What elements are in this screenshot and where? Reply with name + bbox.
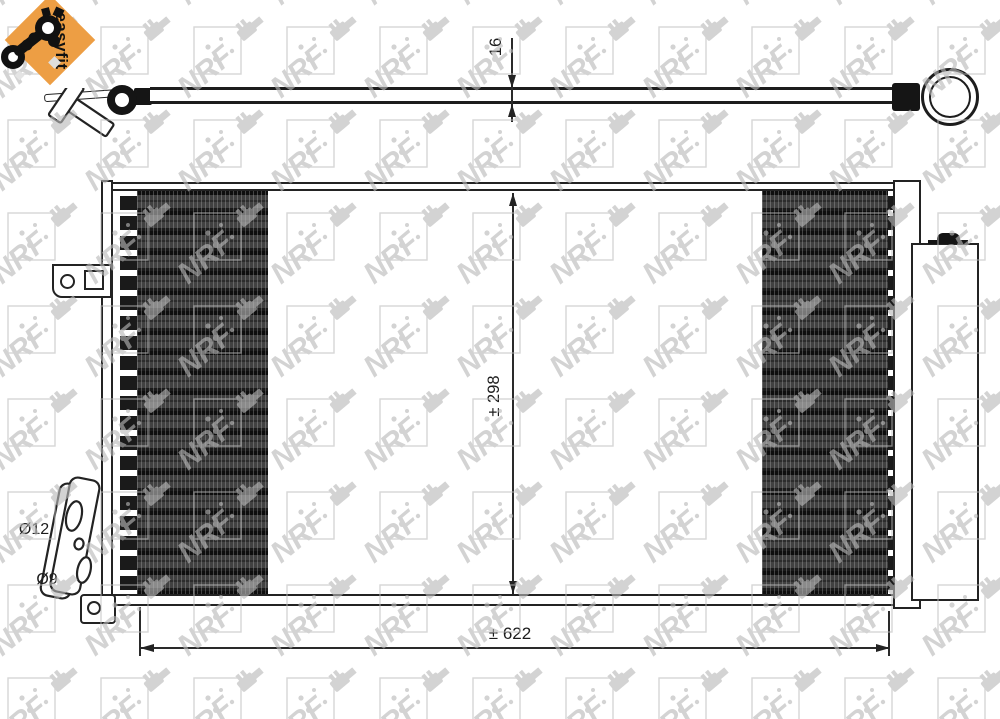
watermark-key-icon bbox=[790, 10, 823, 42]
watermark-text: NRF bbox=[264, 597, 333, 662]
watermark-text: NRF bbox=[729, 597, 798, 662]
watermark-key-icon bbox=[511, 103, 544, 135]
core-fins-left bbox=[137, 191, 268, 595]
watermark-key-icon bbox=[883, 10, 916, 42]
watermark-text: NRF bbox=[636, 0, 705, 11]
core-fins-right bbox=[762, 191, 888, 595]
dim-line-width bbox=[140, 647, 890, 649]
drier-cap bbox=[937, 233, 960, 242]
dim-line-height bbox=[512, 193, 514, 594]
watermark-key-icon bbox=[790, 661, 823, 693]
watermark-text: NRF bbox=[822, 597, 891, 662]
watermark-text: NRF bbox=[78, 690, 147, 719]
pipe-eyelet-left bbox=[107, 85, 137, 115]
watermark-key-icon bbox=[976, 568, 1000, 600]
bottom-header-plate bbox=[112, 594, 893, 606]
watermark-key-icon bbox=[604, 661, 637, 693]
watermark-text: NRF bbox=[822, 0, 891, 11]
dim-arrow-pipe-bottom bbox=[508, 104, 516, 117]
watermark-text: NRF bbox=[636, 690, 705, 719]
watermark-key-icon bbox=[418, 103, 451, 135]
watermark-text: NRF bbox=[543, 597, 612, 662]
watermark-text: NRF bbox=[357, 597, 426, 662]
watermark-key-icon bbox=[883, 661, 916, 693]
dim-arrow-height-bottom bbox=[509, 581, 517, 594]
watermark-key-icon bbox=[325, 10, 358, 42]
watermark-text: NRF bbox=[915, 597, 984, 662]
watermark-text: NRF bbox=[0, 225, 54, 290]
pipe-collar-right bbox=[892, 83, 920, 111]
foot-bracket-hole bbox=[87, 601, 101, 615]
pipe bbox=[150, 87, 895, 104]
watermark-key-icon bbox=[139, 10, 172, 42]
watermark-key-icon bbox=[46, 382, 79, 414]
watermark-text: NRF bbox=[543, 690, 612, 719]
watermark-text: NRF bbox=[171, 0, 240, 11]
watermark-text: NRF bbox=[0, 411, 54, 476]
watermark-key-icon bbox=[790, 103, 823, 135]
watermark-key-icon bbox=[232, 10, 265, 42]
dim-arrow-pipe-top bbox=[508, 75, 516, 88]
watermark-text: NRF bbox=[822, 690, 891, 719]
watermark-text: NRF bbox=[0, 690, 54, 719]
dim-arrow-width-right bbox=[876, 644, 890, 652]
bracket-square-hole bbox=[84, 270, 104, 290]
watermark-key-icon bbox=[697, 103, 730, 135]
watermark-key-icon bbox=[604, 103, 637, 135]
pipe-ring-right-inner bbox=[929, 76, 971, 118]
watermark-text: NRF bbox=[0, 318, 54, 383]
port-top-label: Ø12 bbox=[14, 520, 54, 540]
watermark-key-icon bbox=[418, 10, 451, 42]
watermark-text: NRF bbox=[0, 597, 54, 662]
watermark-key-icon bbox=[697, 10, 730, 42]
bracket-round-hole bbox=[60, 274, 75, 289]
watermark-key-icon bbox=[511, 661, 544, 693]
watermark-key-icon bbox=[325, 103, 358, 135]
dim-arrow-width-left bbox=[140, 644, 154, 652]
watermark-key-icon bbox=[325, 661, 358, 693]
receiver-drier bbox=[911, 243, 979, 601]
key-icon bbox=[0, 6, 74, 80]
watermark-text: NRF bbox=[729, 690, 798, 719]
watermark-text: NRF bbox=[264, 0, 333, 11]
watermark-key-icon bbox=[976, 475, 1000, 507]
watermark-key-icon bbox=[697, 661, 730, 693]
watermark-key-icon bbox=[418, 661, 451, 693]
watermark-key-icon bbox=[976, 661, 1000, 693]
watermark-key-icon bbox=[976, 10, 1000, 42]
watermark-key-icon bbox=[976, 382, 1000, 414]
condenser-technical-drawing: Ø12 Ø9 16 ± 298 ± 622 NRF bbox=[0, 0, 1000, 719]
watermark-key-icon bbox=[46, 196, 79, 228]
watermark-key-icon bbox=[511, 10, 544, 42]
dim-label-width: ± 622 bbox=[468, 624, 552, 644]
watermark-key-icon bbox=[139, 103, 172, 135]
watermark-key-icon bbox=[232, 103, 265, 135]
watermark-key-icon bbox=[139, 661, 172, 693]
top-header-plate bbox=[112, 182, 893, 191]
watermark-text: NRF bbox=[171, 597, 240, 662]
serpentine-tube-bends-left bbox=[120, 193, 138, 595]
watermark-text: NRF bbox=[729, 0, 798, 11]
watermark-key-icon bbox=[976, 103, 1000, 135]
watermark-text: NRF bbox=[915, 690, 984, 719]
dim-arrow-height-top bbox=[509, 193, 517, 206]
watermark-text: NRF bbox=[450, 690, 519, 719]
watermark-text: NRF bbox=[357, 690, 426, 719]
watermark-text: NRF bbox=[450, 0, 519, 11]
watermark-key-icon bbox=[232, 661, 265, 693]
dim-label-pipe: 16 bbox=[486, 27, 506, 67]
watermark-text: NRF bbox=[915, 132, 984, 197]
watermark-key-icon bbox=[976, 196, 1000, 228]
dim-label-height: ± 298 bbox=[484, 361, 504, 431]
watermark-text: NRF bbox=[357, 0, 426, 11]
watermark-key-icon bbox=[604, 10, 637, 42]
watermark-text: NRF bbox=[915, 0, 984, 11]
port-bottom-label: Ø9 bbox=[30, 570, 64, 590]
watermark-key-icon bbox=[46, 661, 79, 693]
watermark-key-icon bbox=[976, 289, 1000, 321]
watermark-text: NRF bbox=[543, 0, 612, 11]
watermark-text: NRF bbox=[636, 597, 705, 662]
watermark-text: NRF bbox=[171, 690, 240, 719]
watermark-text: NRF bbox=[264, 690, 333, 719]
easyfit-badge: easyfit bbox=[0, 0, 110, 110]
